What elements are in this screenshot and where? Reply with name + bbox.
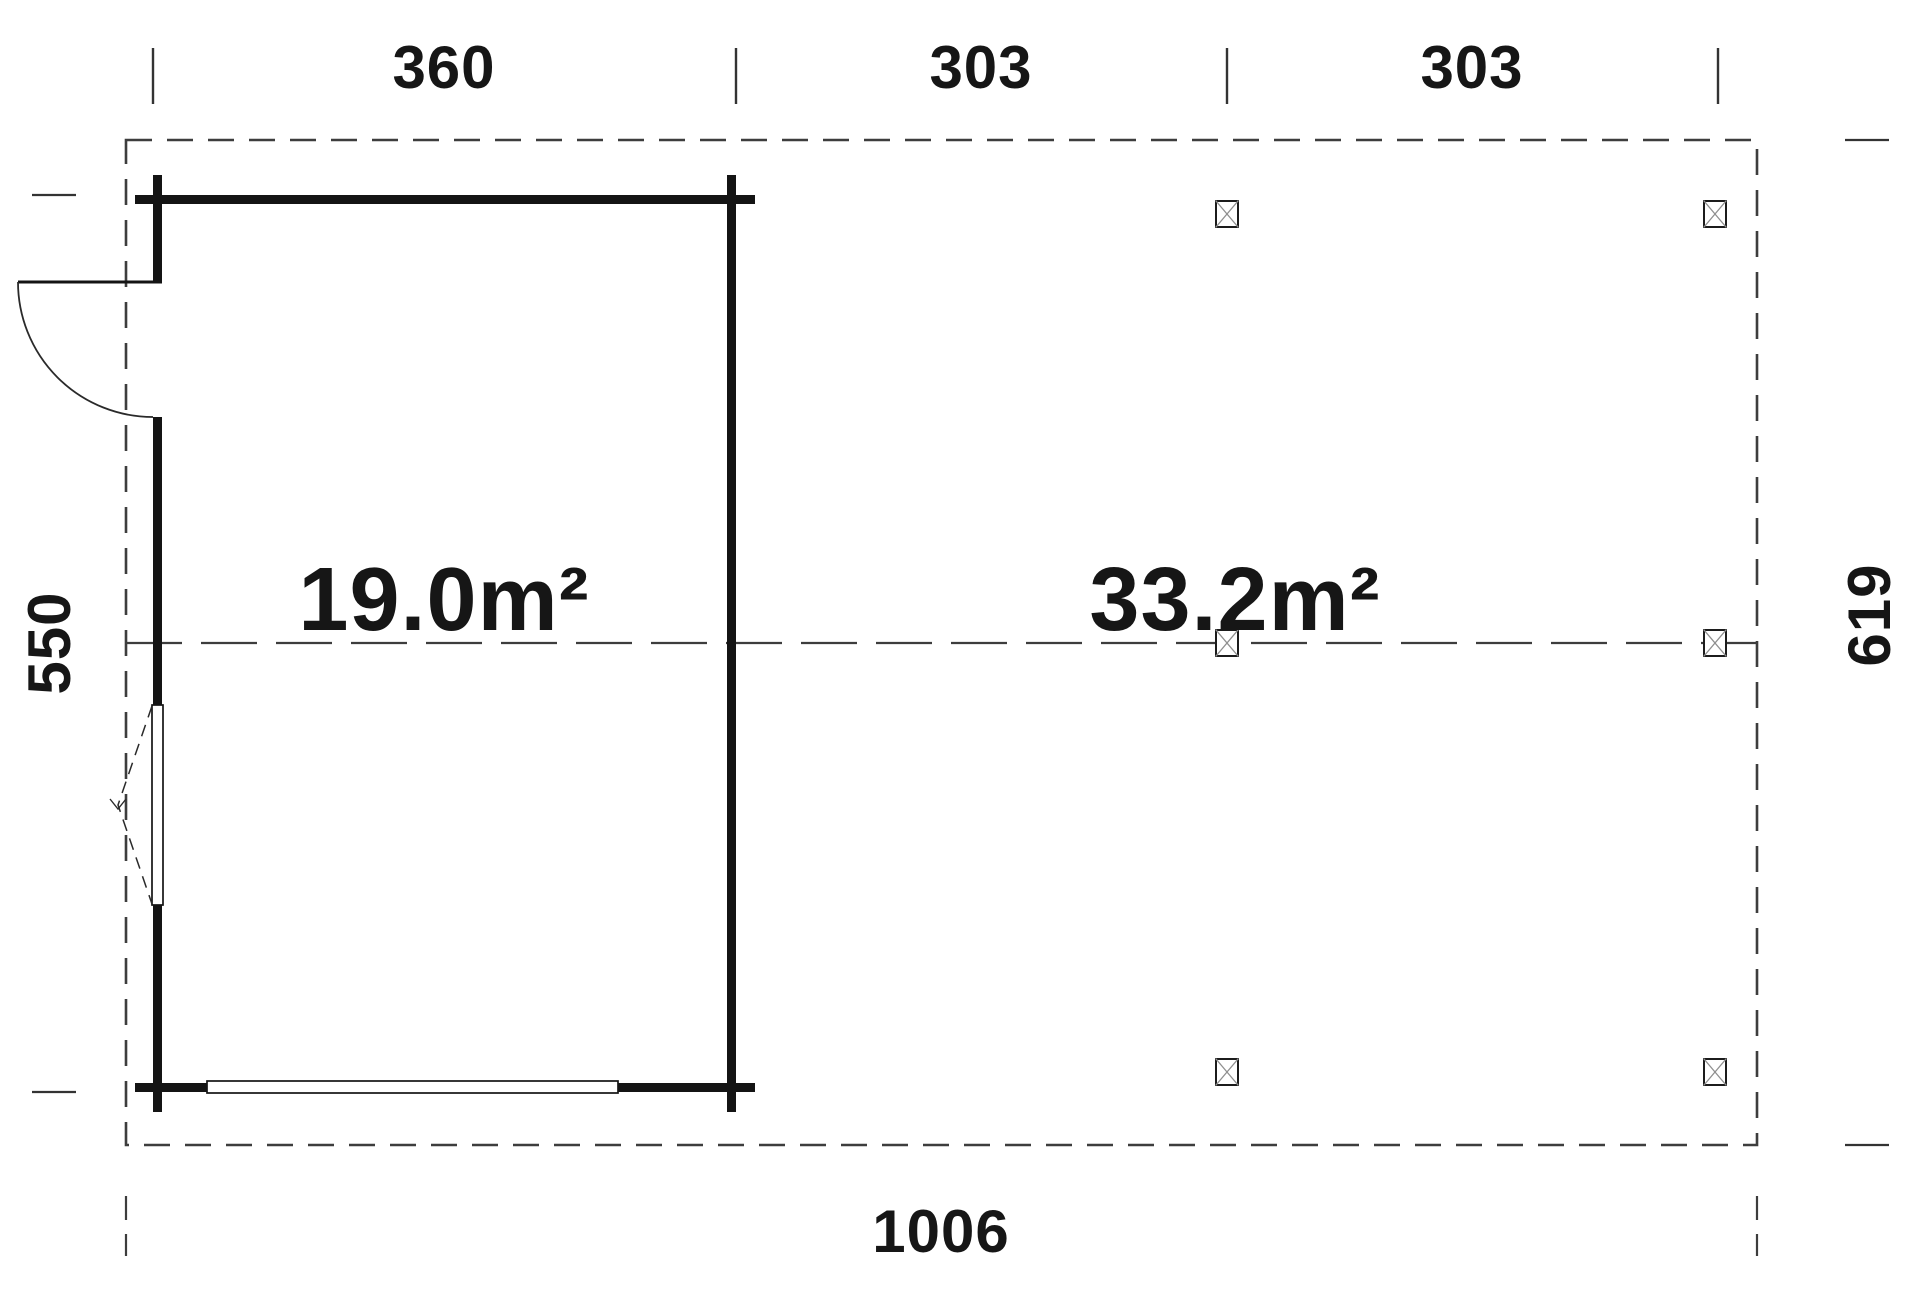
floor-plan-page: 360 303 303 550 619 1006 19.0m² 33.2m²: [0, 0, 1920, 1315]
wall-top: [135, 195, 755, 204]
top-dimension-row: 360 303 303: [153, 34, 1718, 104]
post-marker-bottom-left: [1216, 1059, 1238, 1085]
floor-plan-drawing: 360 303 303 550 619 1006 19.0m² 33.2m²: [0, 0, 1920, 1315]
dimension-total-width: 1006: [872, 1198, 1009, 1265]
carport-area-label: 33.2m²: [1089, 550, 1380, 650]
side-window-frame: [152, 705, 163, 905]
dimension-left-height: 550: [16, 591, 83, 694]
door-swing-arc-icon: [18, 282, 153, 417]
entry-door: [18, 282, 162, 417]
window-opening-triangle-icon: [118, 706, 152, 904]
post-marker-top-right: [1704, 201, 1726, 227]
dimension-garage-width: 360: [392, 34, 495, 101]
side-window: [110, 705, 163, 905]
right-dimension: 619: [1836, 140, 1903, 1145]
bottom-dimension: 1006: [126, 1196, 1757, 1265]
dimension-carport-bay-2: 303: [1420, 34, 1523, 101]
wall-left-upper-segment: [153, 175, 162, 282]
dimension-carport-bay-1: 303: [929, 34, 1032, 101]
wall-right: [727, 175, 736, 1112]
dimension-right-height: 619: [1836, 563, 1903, 666]
wall-left-lower-segment: [153, 905, 162, 1112]
post-marker-bottom-right: [1704, 1059, 1726, 1085]
post-marker-top-left: [1216, 201, 1238, 227]
wall-left-middle-segment: [153, 417, 162, 705]
wall-bottom-left-segment: [135, 1083, 212, 1092]
garage-area-label: 19.0m²: [298, 550, 589, 650]
post-marker-middle-right: [1704, 630, 1726, 656]
rear-window-frame: [207, 1081, 618, 1093]
